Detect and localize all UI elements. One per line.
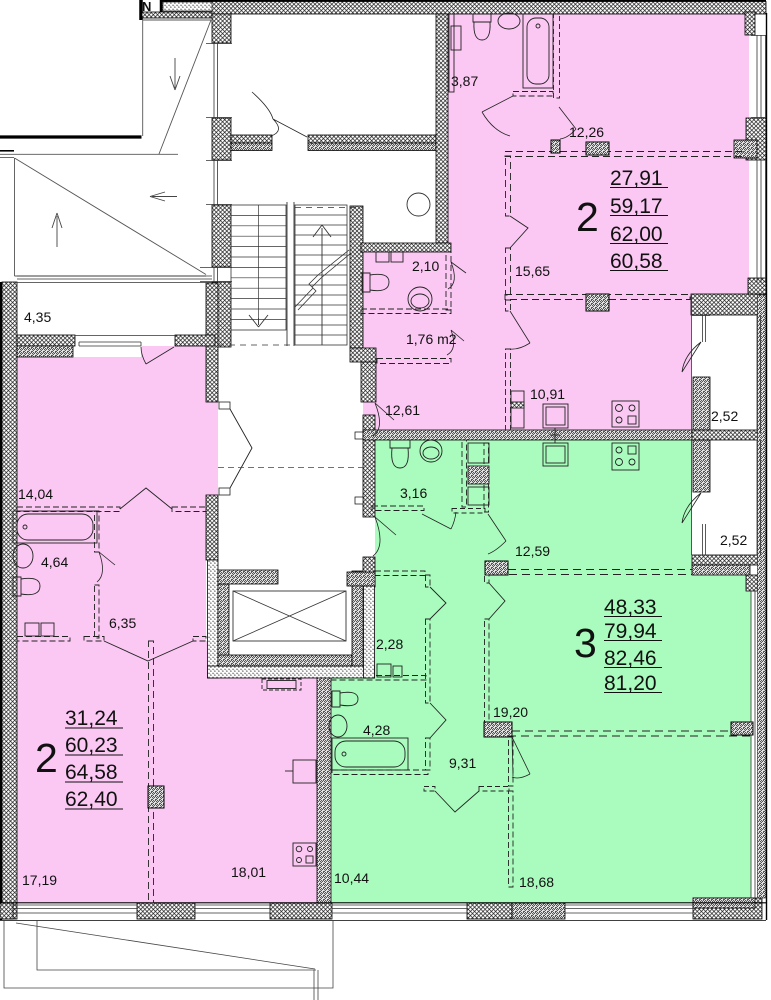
- svg-text:60,58: 60,58: [610, 250, 663, 273]
- svg-text:48,33: 48,33: [604, 596, 657, 619]
- svg-text:18,01: 18,01: [231, 864, 266, 880]
- svg-text:1,76 m2: 1,76 m2: [406, 331, 457, 347]
- svg-text:2: 2: [576, 194, 599, 240]
- svg-text:3,16: 3,16: [400, 485, 427, 501]
- svg-text:2,10: 2,10: [412, 258, 439, 274]
- svg-text:12,26: 12,26: [569, 124, 604, 140]
- svg-text:6,35: 6,35: [109, 615, 136, 631]
- svg-text:3: 3: [574, 620, 597, 666]
- svg-text:12,59: 12,59: [515, 543, 550, 559]
- svg-text:12,61: 12,61: [385, 402, 420, 418]
- svg-text:59,17: 59,17: [610, 195, 663, 218]
- svg-text:14,04: 14,04: [18, 486, 53, 502]
- svg-text:27,91: 27,91: [610, 167, 663, 190]
- svg-text:2,52: 2,52: [720, 532, 747, 548]
- svg-text:15,65: 15,65: [515, 263, 550, 279]
- svg-text:2,52: 2,52: [711, 408, 738, 424]
- svg-text:62,40: 62,40: [65, 788, 118, 811]
- svg-text:9,31: 9,31: [449, 755, 476, 771]
- svg-text:19,20: 19,20: [493, 704, 528, 720]
- svg-text:81,20: 81,20: [604, 672, 657, 695]
- svg-text:4,35: 4,35: [24, 309, 51, 325]
- svg-text:17,19: 17,19: [22, 872, 57, 888]
- svg-text:2,28: 2,28: [376, 636, 403, 652]
- svg-text:2: 2: [35, 735, 58, 781]
- svg-text:82,46: 82,46: [604, 647, 657, 670]
- svg-text:60,23: 60,23: [65, 734, 118, 757]
- svg-text:64,58: 64,58: [65, 761, 118, 784]
- svg-text:10,91: 10,91: [530, 386, 565, 402]
- svg-text:3,87: 3,87: [451, 73, 478, 89]
- svg-text:18,68: 18,68: [519, 874, 554, 890]
- svg-text:79,94: 79,94: [604, 620, 657, 643]
- svg-text:62,00: 62,00: [610, 223, 663, 246]
- svg-text:31,24: 31,24: [65, 707, 118, 730]
- svg-text:4,28: 4,28: [363, 722, 390, 738]
- svg-text:4,64: 4,64: [41, 554, 68, 570]
- svg-text:10,44: 10,44: [334, 870, 369, 886]
